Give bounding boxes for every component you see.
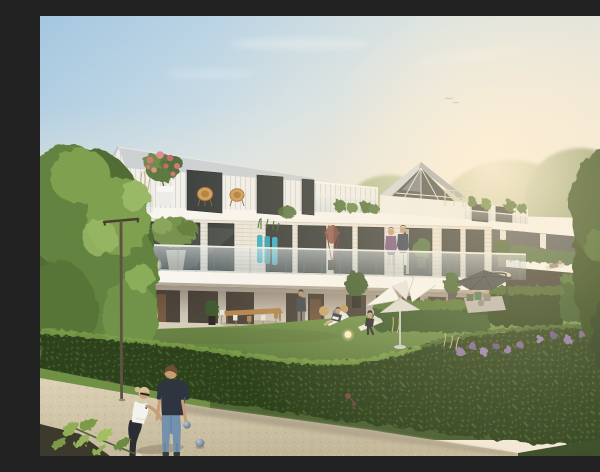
architectural-rendering <box>40 16 600 456</box>
render-canvas <box>40 16 600 456</box>
warm-light-overlay <box>40 16 600 456</box>
